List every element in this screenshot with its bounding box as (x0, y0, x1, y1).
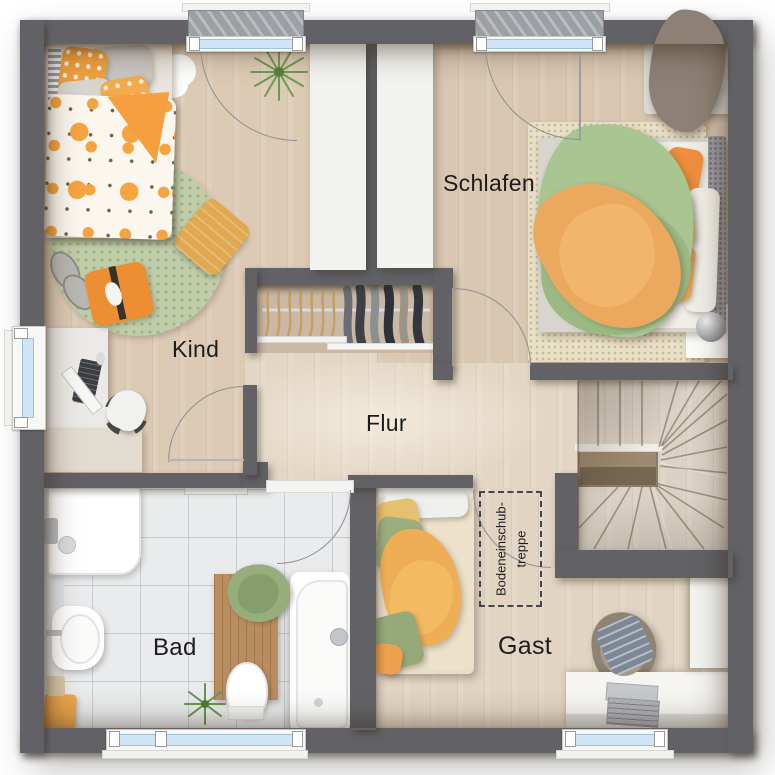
bad-shower-drain (58, 536, 76, 554)
wall-schlafen-west (433, 268, 453, 368)
attic-stairs-dashed-box: Bodeneinschub- treppe (479, 491, 542, 607)
wall-gast-niche-top (348, 475, 473, 488)
closet-track-right (327, 343, 435, 350)
bad-sink-basin (60, 614, 100, 664)
schlafen-sphere-lamp (696, 312, 726, 342)
kind-door-leaf (168, 459, 244, 461)
bad-towel-rail (184, 487, 248, 495)
stairwell-parapet-cap (574, 443, 664, 452)
label-kind: Kind (172, 338, 219, 361)
attic-stairs-label-line2: treppe (511, 502, 531, 596)
bad-towel-beige (47, 676, 65, 696)
attic-stairs-label-line1: Bodeneinschub- (491, 502, 511, 596)
wall-closet-top (245, 268, 446, 285)
wall-stub (243, 385, 257, 475)
wall-kind-schlafen (366, 44, 377, 284)
label-bad: Bad (153, 636, 197, 660)
label-schlafen: Schlafen (443, 172, 535, 195)
wall-closet-left (245, 268, 257, 353)
bad-bathtub-drain (314, 698, 323, 707)
wall-exterior-right (728, 20, 753, 753)
bad-bathtub-faucet (330, 628, 348, 646)
wall-exterior-top (20, 20, 753, 44)
closet-track-left (257, 336, 347, 343)
schlafen-window-leaf (579, 44, 581, 139)
wall-schlafen-south (530, 363, 733, 380)
wardrobe-kind (310, 44, 366, 270)
attic-stairs-label: Bodeneinschub- treppe (491, 502, 530, 596)
bad-shower-faucet (44, 518, 58, 544)
kind-mouse (96, 352, 105, 365)
wardrobe-schlafen (377, 44, 433, 268)
wall-bad-gast (350, 476, 376, 730)
wall-schlafen-west-foot (433, 363, 453, 380)
bad-shower (47, 487, 141, 575)
gast-laptop-keyboard (606, 697, 660, 728)
gast-cabinet (690, 572, 732, 668)
stairwell-opening-shadow (580, 467, 656, 485)
wall-stairwell-bottom (555, 550, 733, 578)
bad-laundry-orange (43, 693, 77, 729)
label-flur: Flur (366, 412, 407, 435)
floor-plan: Kind Schlafen Flur Bad Gast Bodeneinschu… (0, 0, 775, 775)
bad-bathtub-inner (296, 580, 348, 729)
label-gast: Gast (498, 634, 552, 659)
schlafen-door-leaf (452, 288, 454, 366)
bad-sink-faucet (46, 630, 62, 636)
wall-kind-south (44, 473, 243, 488)
bad-toilet-tank (228, 706, 264, 720)
